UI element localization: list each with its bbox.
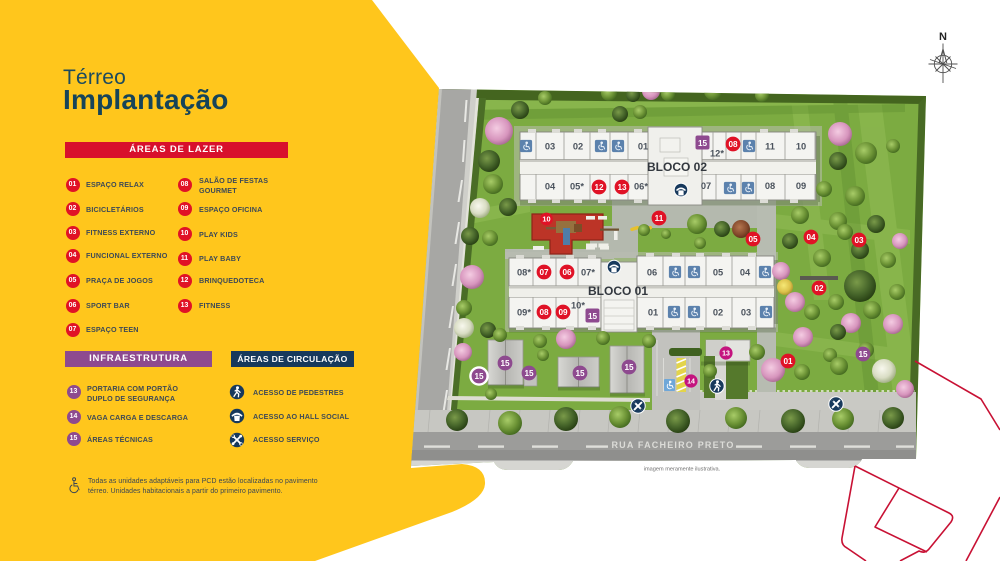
svg-text:08: 08 bbox=[728, 140, 738, 149]
svg-text:06: 06 bbox=[562, 268, 572, 277]
svg-text:15: 15 bbox=[500, 359, 510, 368]
svg-text:08: 08 bbox=[765, 181, 775, 191]
svg-text:05: 05 bbox=[713, 268, 723, 278]
svg-text:15: 15 bbox=[858, 350, 868, 359]
svg-text:06: 06 bbox=[647, 268, 657, 278]
svg-text:15: 15 bbox=[474, 372, 484, 381]
svg-text:05: 05 bbox=[748, 235, 758, 244]
svg-text:05*: 05* bbox=[570, 182, 584, 192]
svg-text:11: 11 bbox=[765, 142, 775, 152]
svg-text:13: 13 bbox=[722, 351, 730, 358]
svg-text:04: 04 bbox=[806, 233, 816, 242]
svg-text:03: 03 bbox=[741, 308, 751, 318]
svg-text:15: 15 bbox=[588, 312, 598, 321]
svg-text:15: 15 bbox=[524, 369, 534, 378]
svg-text:07: 07 bbox=[539, 268, 549, 277]
svg-text:03: 03 bbox=[854, 236, 864, 245]
svg-text:08: 08 bbox=[539, 308, 549, 317]
svg-text:02: 02 bbox=[713, 308, 723, 318]
svg-text:02: 02 bbox=[814, 284, 824, 293]
svg-text:12*: 12* bbox=[710, 149, 724, 159]
svg-text:15: 15 bbox=[575, 369, 585, 378]
svg-text:13: 13 bbox=[617, 183, 627, 192]
svg-text:01: 01 bbox=[648, 308, 658, 318]
svg-text:09*: 09* bbox=[517, 308, 531, 318]
svg-text:07*: 07* bbox=[581, 268, 595, 278]
svg-text:07: 07 bbox=[701, 181, 711, 191]
svg-text:04: 04 bbox=[740, 268, 751, 278]
svg-text:03: 03 bbox=[545, 142, 555, 152]
svg-text:06*: 06* bbox=[634, 182, 648, 192]
svg-text:04: 04 bbox=[545, 182, 556, 192]
svg-text:14: 14 bbox=[687, 379, 695, 386]
svg-text:01: 01 bbox=[638, 142, 648, 152]
svg-text:RUA FACHEIRO PRETO: RUA FACHEIRO PRETO bbox=[611, 440, 734, 450]
svg-text:N: N bbox=[939, 31, 947, 43]
svg-text:09: 09 bbox=[796, 181, 806, 191]
svg-text:15: 15 bbox=[698, 139, 708, 148]
svg-text:08*: 08* bbox=[517, 268, 531, 278]
svg-text:BLOCO 01: BLOCO 01 bbox=[588, 284, 648, 298]
svg-text:12: 12 bbox=[594, 183, 604, 192]
svg-text:15: 15 bbox=[624, 363, 634, 372]
svg-text:10: 10 bbox=[542, 215, 550, 224]
svg-text:01: 01 bbox=[783, 357, 793, 366]
svg-text:09: 09 bbox=[558, 308, 568, 317]
svg-text:BLOCO 02: BLOCO 02 bbox=[647, 160, 707, 174]
svg-text:02: 02 bbox=[573, 142, 583, 152]
svg-text:imagem meramente ilustrativa.: imagem meramente ilustrativa. bbox=[644, 467, 721, 473]
svg-text:10: 10 bbox=[796, 142, 806, 152]
svg-text:10*: 10* bbox=[571, 301, 585, 311]
svg-text:11: 11 bbox=[655, 214, 664, 223]
